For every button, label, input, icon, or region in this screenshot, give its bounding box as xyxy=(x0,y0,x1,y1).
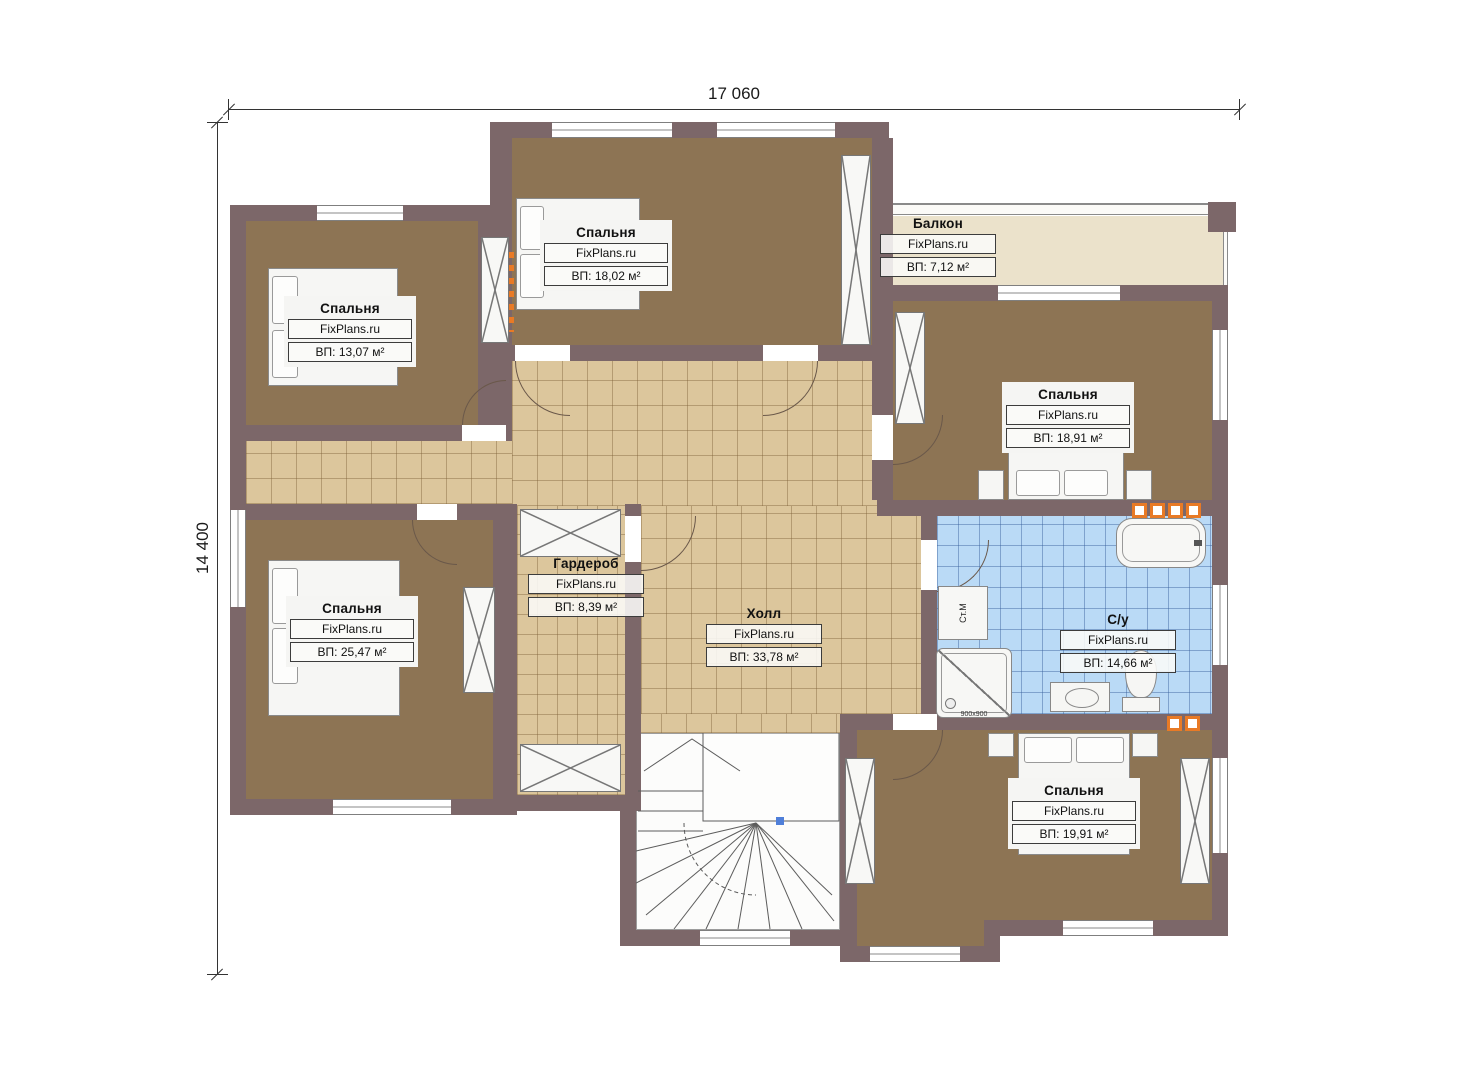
room-brand: FixPlans.ru xyxy=(288,319,412,339)
wall-segment xyxy=(493,504,517,811)
room-brand: FixPlans.ru xyxy=(1060,630,1176,650)
window xyxy=(1063,920,1153,936)
room-area: ВП: 7,12 м² xyxy=(880,257,996,277)
room-label-bedroom-top-left: Спальня FixPlans.ru ВП: 13,07 м² xyxy=(284,296,416,367)
floor-hall xyxy=(636,714,840,733)
door-opening xyxy=(921,540,937,590)
room-name: Холл xyxy=(706,606,822,621)
nightstand xyxy=(1126,470,1152,500)
door-opening xyxy=(893,714,937,730)
room-name: Спальня xyxy=(544,225,668,240)
radiator-marker xyxy=(1132,503,1147,518)
room-label-hall: Холл FixPlans.ru ВП: 33,78 м² xyxy=(706,606,822,667)
bathtub-inner xyxy=(1122,524,1200,562)
room-name: Спальня xyxy=(290,601,414,616)
ventilation-shaft xyxy=(1180,758,1210,884)
room-area: ВП: 18,02 м² xyxy=(544,266,668,286)
room-area: ВП: 19,91 м² xyxy=(1012,824,1136,844)
wall-segment xyxy=(246,504,517,520)
nightstand xyxy=(988,733,1014,757)
room-name: Балкон xyxy=(880,216,996,231)
room-brand: FixPlans.ru xyxy=(528,574,644,594)
wall-segment xyxy=(1208,202,1236,232)
wall-segment xyxy=(872,301,893,500)
room-brand: FixPlans.ru xyxy=(880,234,996,254)
sink-basin xyxy=(1065,688,1099,708)
nightstand xyxy=(978,470,1004,500)
room-brand: FixPlans.ru xyxy=(1012,801,1136,821)
room-name: Гардероб xyxy=(528,556,644,571)
radiator-marker xyxy=(1167,716,1182,731)
window xyxy=(998,285,1120,301)
room-label-bathroom: С/у FixPlans.ru ВП: 14,66 м² xyxy=(1060,612,1176,673)
door-opening xyxy=(462,425,506,441)
stair-marker xyxy=(776,817,784,825)
door-opening xyxy=(763,345,818,361)
dimension-width-label: 17 060 xyxy=(228,84,1240,104)
radiator-marker xyxy=(1185,716,1200,731)
sink-vanity xyxy=(1050,682,1110,712)
floor-hall xyxy=(246,441,512,504)
room-brand: FixPlans.ru xyxy=(290,619,414,639)
pillow xyxy=(1024,737,1072,763)
washing-machine-label: Ст.М xyxy=(958,603,968,623)
room-brand: FixPlans.ru xyxy=(706,624,822,644)
room-label-bedroom-bottom-right: Спальня FixPlans.ru ВП: 19,91 м² xyxy=(1008,778,1140,849)
window xyxy=(700,930,790,946)
room-name: Спальня xyxy=(1006,387,1130,402)
wall-segment xyxy=(517,795,641,811)
floor-plan: 17 060 14 400 Ст.М 900x900 xyxy=(0,0,1474,1080)
balcony-railing xyxy=(893,203,1228,215)
pillow xyxy=(1016,470,1060,496)
pillow xyxy=(1064,470,1108,496)
ventilation-shaft xyxy=(463,587,495,693)
room-label-bedroom-top-center: Спальня FixPlans.ru ВП: 18,02 м² xyxy=(540,220,672,291)
room-label-wardrobe: Гардероб FixPlans.ru ВП: 8,39 м² xyxy=(528,556,644,617)
room-name: С/у xyxy=(1060,612,1176,627)
radiator-marker xyxy=(1186,503,1201,518)
ventilation-shaft xyxy=(895,312,925,424)
staircase xyxy=(636,733,840,930)
room-name: Спальня xyxy=(288,301,412,316)
room-brand: FixPlans.ru xyxy=(1006,405,1130,425)
door-opening xyxy=(417,504,457,520)
balcony-railing xyxy=(1223,231,1228,285)
window xyxy=(1212,330,1228,420)
room-name: Спальня xyxy=(1012,783,1136,798)
drain-icon xyxy=(945,698,956,709)
washing-machine: Ст.М xyxy=(938,586,988,640)
room-area: ВП: 13,07 м² xyxy=(288,342,412,362)
radiator-strip xyxy=(509,252,514,332)
radiator-marker xyxy=(1150,503,1165,518)
door-opening xyxy=(515,345,570,361)
window xyxy=(1212,758,1228,853)
ventilation-shaft xyxy=(520,509,621,557)
window xyxy=(1212,585,1228,665)
dimension-height-label: 14 400 xyxy=(193,513,213,583)
door-opening xyxy=(872,415,893,460)
pillow xyxy=(1076,737,1124,763)
room-area: ВП: 18,91 м² xyxy=(1006,428,1130,448)
radiator-marker xyxy=(1168,503,1183,518)
window xyxy=(317,205,403,221)
bathtub xyxy=(1116,518,1206,568)
shower-size-label: 900x900 xyxy=(937,711,1011,718)
ventilation-shaft xyxy=(520,744,621,792)
room-label-balcony: Балкон FixPlans.ru ВП: 7,12 м² xyxy=(880,216,996,277)
window xyxy=(717,122,835,138)
room-label-bedroom-bottom-left: Спальня FixPlans.ru ВП: 25,47 м² xyxy=(286,596,418,667)
room-area: ВП: 8,39 м² xyxy=(528,597,644,617)
toilet-tank xyxy=(1122,697,1160,712)
ventilation-shaft xyxy=(845,758,875,884)
nightstand xyxy=(1132,733,1158,757)
room-area: ВП: 33,78 м² xyxy=(706,647,822,667)
room-area: ВП: 25,47 м² xyxy=(290,642,414,662)
dimension-height-line xyxy=(217,122,218,975)
dimension-width-line xyxy=(228,109,1240,110)
window xyxy=(230,510,246,607)
window xyxy=(870,946,960,962)
ventilation-shaft xyxy=(841,155,871,345)
shower-tray: 900x900 xyxy=(936,648,1012,718)
faucet-icon xyxy=(1194,540,1202,546)
stair-landing xyxy=(703,733,839,821)
ventilation-shaft xyxy=(481,237,509,343)
window xyxy=(552,122,672,138)
room-label-bedroom-right: Спальня FixPlans.ru ВП: 18,91 м² xyxy=(1002,382,1134,453)
room-brand: FixPlans.ru xyxy=(544,243,668,263)
wall-segment xyxy=(620,811,636,946)
room-area: ВП: 14,66 м² xyxy=(1060,653,1176,673)
floor-bedroom-bottom-right xyxy=(857,920,984,946)
window xyxy=(333,799,451,815)
